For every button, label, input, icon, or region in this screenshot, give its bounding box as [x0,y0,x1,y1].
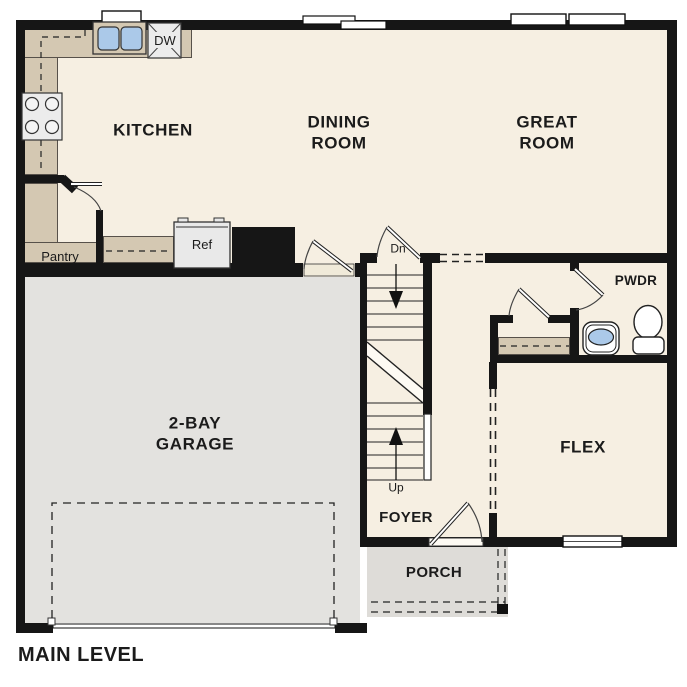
plan-drawing-layer [0,0,687,687]
room-label-great: GREAT ROOM [516,112,577,153]
stairs-down-arrow [389,264,403,309]
stove-icon [22,93,62,140]
plan-title: MAIN LEVEL [18,644,144,667]
room-label-foyer: FOYER [379,509,433,527]
dining-line1: DINING [307,112,370,133]
stairs-up-arrow [389,427,403,480]
stair-handrail [424,414,431,480]
garage-line2: GARAGE [156,434,234,455]
room-label-pwdr: PWDR [615,273,657,289]
stair-break-band [367,342,423,403]
room-label-pantry: Pantry [41,249,79,265]
flex-cased-opening [489,389,497,513]
kitchen-sink-icon [93,22,146,54]
toilet-icon [633,306,664,355]
great-line1: GREAT [516,112,577,133]
refrigerator-label: Ref [192,237,212,253]
room-label-kitchen: KITCHEN [113,121,193,142]
great-line2: ROOM [516,133,577,154]
garage-overhead-door [48,618,337,628]
powder-sink-icon [583,322,619,355]
great-room-window-2 [569,14,625,25]
garage-door-dashed-outline [52,503,334,618]
powder-door-swing [575,269,603,310]
room-label-dining: DINING ROOM [307,112,370,153]
room-label-garage: 2-BAY GARAGE [156,413,234,454]
great-room-window-1 [511,14,566,25]
room-label-porch: PORCH [406,564,462,582]
floor-plan: KITCHEN DINING ROOM GREAT ROOM 2-BAY GAR… [0,0,687,687]
closet-door-swing [509,289,549,317]
room-label-flex: FLEX [560,438,606,459]
dining-line2: ROOM [307,133,370,154]
pantry-door-swing [71,184,102,211]
porch-post [497,604,508,614]
flex-window [563,536,622,547]
kitchen-window [102,11,141,23]
stairs-icon [367,264,431,480]
stairs-down-label: Dn [390,242,405,257]
dishwasher-label: DW [154,33,176,49]
hall-cased-opening [440,253,485,263]
stairs-up-label: Up [388,481,403,496]
upper-cabinet-dashed-line [41,30,569,346]
dining-window [303,16,386,29]
garage-line1: 2-BAY [156,413,234,434]
